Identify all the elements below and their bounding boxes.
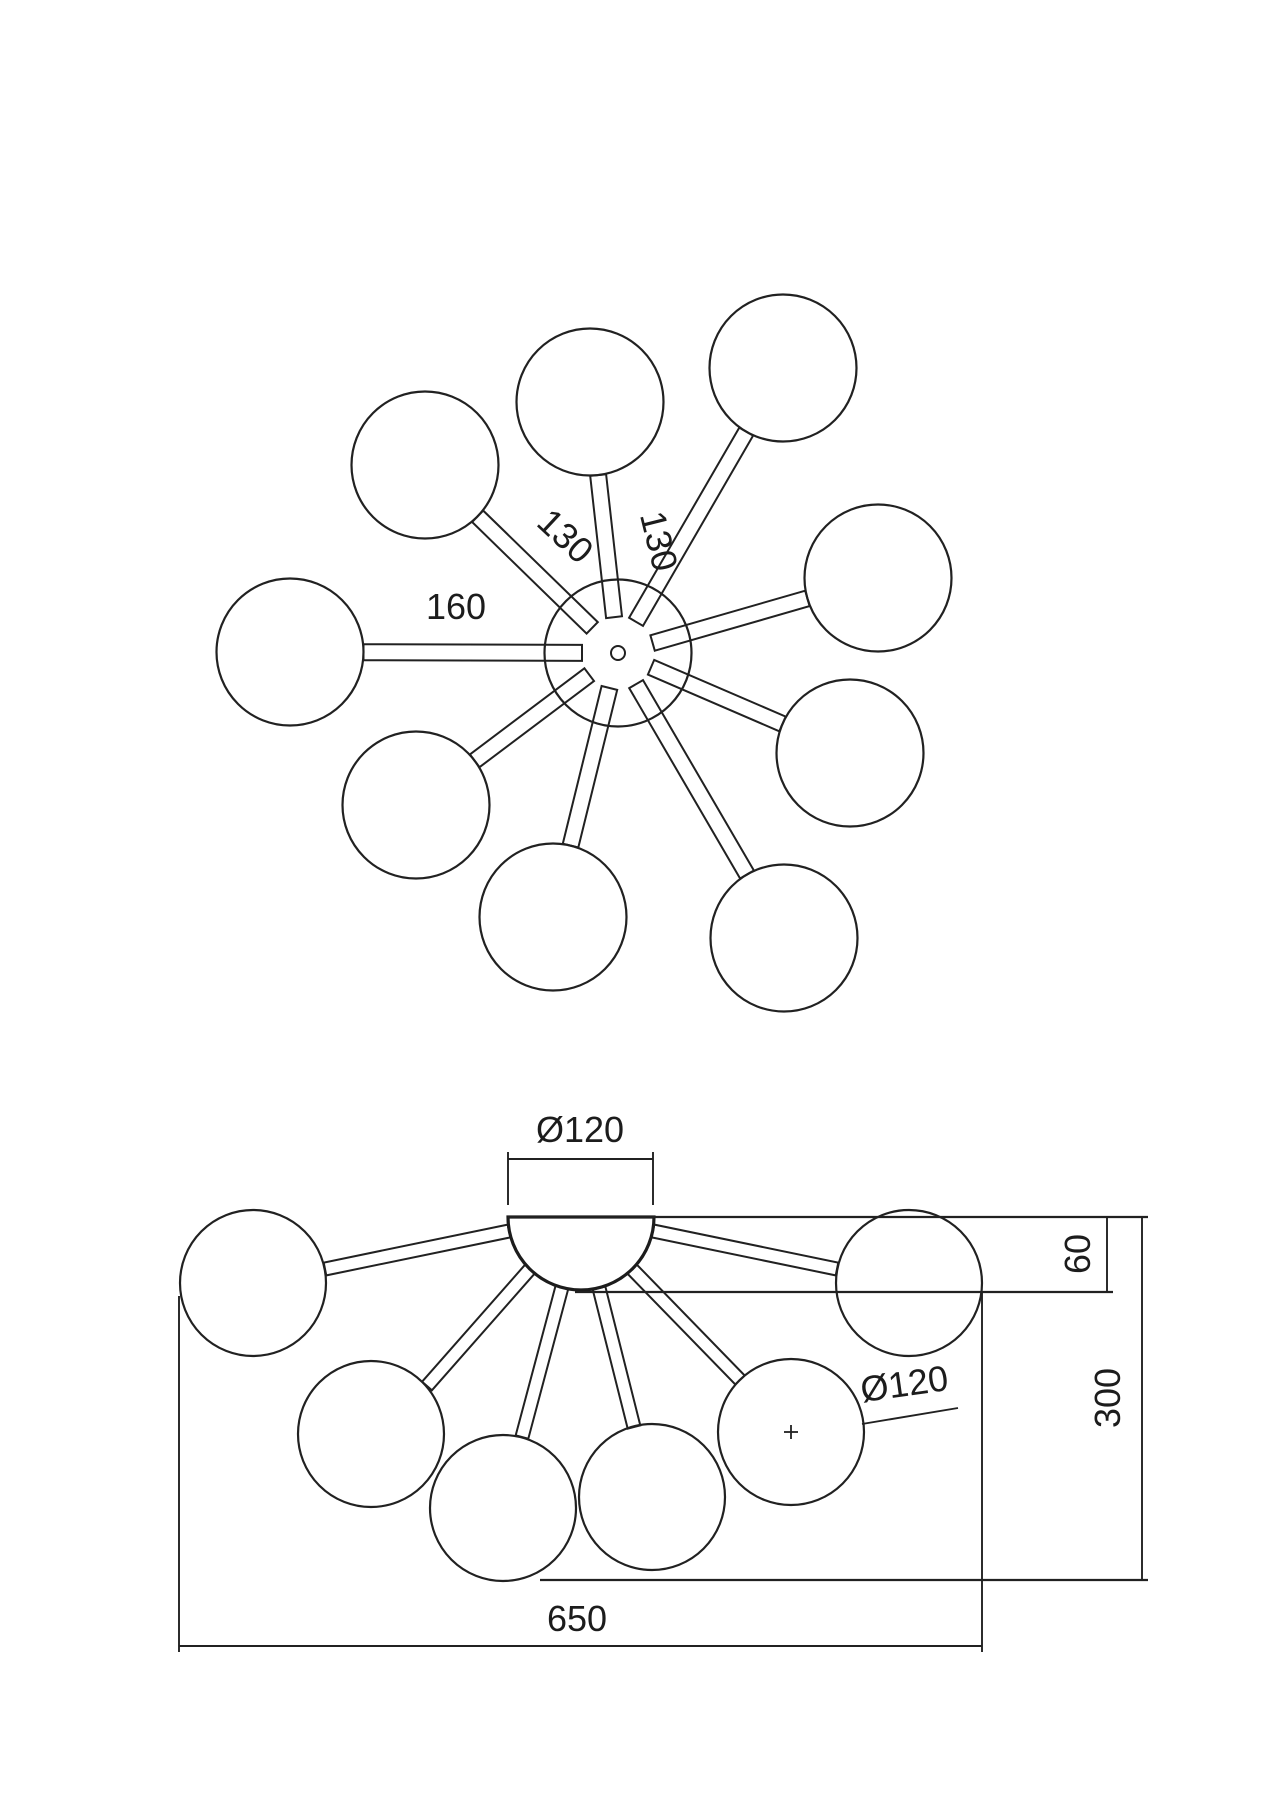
top-view-globe-8 xyxy=(343,732,490,879)
dim-label-top-130-2: 130 xyxy=(632,507,686,575)
side-view-arm-0 xyxy=(324,1225,511,1276)
top-view-globe-0 xyxy=(217,579,364,726)
dim-label-side-1: 60 xyxy=(1057,1234,1098,1274)
side-view-globe-0 xyxy=(180,1210,326,1356)
top-view-globe-4 xyxy=(805,505,952,652)
top-view-globe-5 xyxy=(777,680,924,827)
top-view-arm-0 xyxy=(364,644,583,661)
side-view-globe-4 xyxy=(579,1424,725,1570)
lamp-technical-drawing: 160130130Ø12060300650Ø120 xyxy=(0,0,1272,1800)
canopy-center-hole xyxy=(611,646,625,660)
dim-label-side-3: 650 xyxy=(547,1598,607,1639)
side-view-arm-1 xyxy=(652,1225,839,1276)
dim-label-top-160-0: 160 xyxy=(426,586,486,627)
dimension-line-8 xyxy=(862,1408,958,1424)
top-view-globe-2 xyxy=(517,329,664,476)
dim-label-side-4: Ø120 xyxy=(858,1357,951,1410)
dim-label-top-130-1: 130 xyxy=(530,500,602,571)
side-view-globe-2 xyxy=(298,1361,444,1507)
technical-drawing-sheet: 160130130Ø12060300650Ø120 xyxy=(0,0,1272,1800)
top-view-arm-8 xyxy=(470,668,594,767)
top-view-arm-6 xyxy=(629,680,754,878)
dim-label-side-0: Ø120 xyxy=(536,1109,624,1150)
top-view-globe-3 xyxy=(710,295,857,442)
side-view-arm-4 xyxy=(593,1286,641,1428)
side-view-globe-1 xyxy=(836,1210,982,1356)
top-view-arm-4 xyxy=(650,591,809,651)
top-view-globe-1 xyxy=(352,392,499,539)
top-view-globe-6 xyxy=(711,865,858,1012)
top-view-arm-5 xyxy=(648,660,786,731)
side-view-arm-3 xyxy=(516,1285,569,1438)
side-view-globe-3 xyxy=(430,1435,576,1581)
dim-label-side-2: 300 xyxy=(1087,1368,1128,1428)
top-view-globe-7 xyxy=(480,844,627,991)
side-view-arm-5 xyxy=(627,1265,744,1385)
side-view-arm-2 xyxy=(422,1265,535,1391)
top-view-canopy-circle xyxy=(545,580,692,727)
